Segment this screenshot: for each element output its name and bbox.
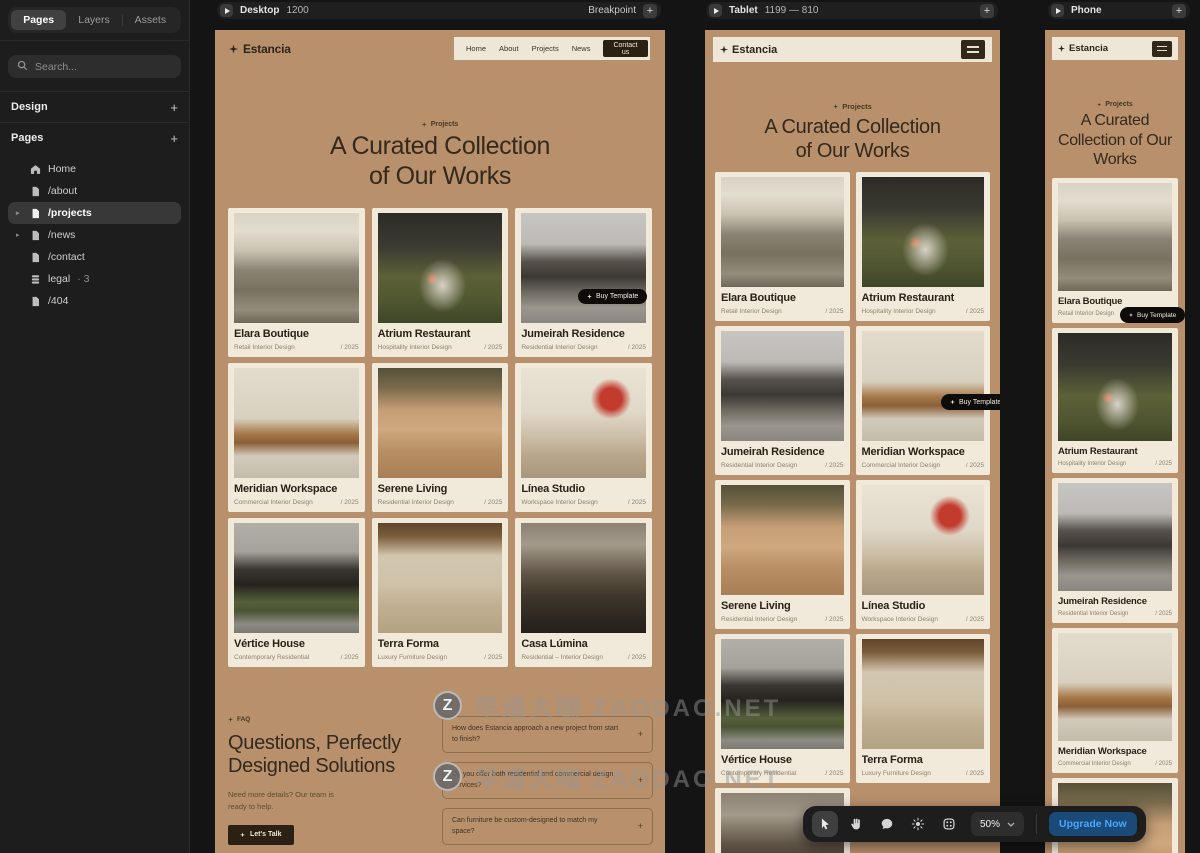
project-year: / 2025 bbox=[484, 344, 502, 351]
star-icon bbox=[950, 400, 955, 405]
project-year: / 2025 bbox=[825, 462, 843, 469]
project-card[interactable]: Jumeirah Residence Residential Interior … bbox=[515, 208, 652, 357]
project-category: Hospitality Interior Design bbox=[862, 308, 936, 315]
faq-question: Do you offer both residential and commer… bbox=[452, 770, 620, 791]
tablet-breakpoint-bar[interactable]: Tablet 1199 — 810 + bbox=[706, 2, 998, 19]
upgrade-now-button[interactable]: Upgrade Now bbox=[1049, 812, 1137, 836]
project-image bbox=[521, 213, 646, 323]
project-image bbox=[862, 639, 985, 749]
project-category: Commercial Interior Design bbox=[1058, 761, 1131, 767]
project-year: / 2025 bbox=[628, 654, 646, 661]
project-meta: Luxury Furniture Design / 2025 bbox=[862, 770, 985, 777]
project-meta: Commercial Interior Design / 2025 bbox=[862, 462, 985, 469]
project-title: Meridian Workspace bbox=[862, 446, 985, 458]
hero-badge: Projects bbox=[215, 121, 665, 128]
project-year: / 2025 bbox=[966, 770, 984, 777]
buy-template-pill[interactable]: Buy Template bbox=[941, 394, 1000, 410]
nav-link-home[interactable]: Home bbox=[466, 44, 486, 53]
star-icon bbox=[1097, 103, 1101, 107]
page-label: /404 bbox=[48, 295, 68, 307]
project-image bbox=[721, 639, 844, 749]
project-title: Jumeirah Residence bbox=[721, 446, 844, 458]
project-meta: Residential Interior Design / 2025 bbox=[1058, 611, 1172, 617]
project-image bbox=[1058, 633, 1172, 741]
faq-question: How does Estancia approach a new project… bbox=[452, 724, 620, 745]
lets-talk-button[interactable]: Let's Talk bbox=[228, 825, 294, 845]
project-title: Terra Forma bbox=[378, 638, 503, 650]
faq-title: Questions, PerfectlyDesigned Solutions bbox=[228, 732, 433, 778]
project-meta: Residential Interior Design / 2025 bbox=[721, 462, 844, 469]
project-card[interactable]: Jumeirah Residence Residential Interior … bbox=[715, 326, 850, 475]
project-year: / 2025 bbox=[1155, 761, 1172, 767]
project-image bbox=[234, 368, 359, 478]
project-year: / 2025 bbox=[484, 654, 502, 661]
sidebar-item-news[interactable]: ▸ /news bbox=[8, 224, 181, 246]
project-title: Elara Boutique bbox=[234, 328, 359, 340]
project-year: / 2025 bbox=[825, 616, 843, 623]
project-card[interactable]: Serene Living Residential Interior Desig… bbox=[715, 480, 850, 629]
project-year: / 2025 bbox=[966, 462, 984, 469]
project-title: Jumeirah Residence bbox=[521, 328, 646, 340]
brand-logo[interactable]: Estancia bbox=[720, 44, 777, 56]
page-icon bbox=[30, 296, 41, 307]
star-icon bbox=[1129, 313, 1133, 317]
project-year: / 2025 bbox=[484, 499, 502, 506]
faq-item[interactable]: Can furniture be custom-designed to matc… bbox=[442, 808, 653, 845]
project-title: Vértice House bbox=[721, 754, 844, 766]
buy-template-pill[interactable]: Buy Template bbox=[1120, 307, 1185, 323]
project-card[interactable]: Meridian Workspace Commercial Interior D… bbox=[1052, 628, 1178, 773]
project-year: / 2025 bbox=[825, 308, 843, 315]
add-breakpoint-icon[interactable]: + bbox=[1172, 4, 1186, 18]
left-sidebar: PagesLayersAssets Search... Design + Pag… bbox=[0, 0, 190, 853]
project-card[interactable]: Línea Studio Workspace Interior Design /… bbox=[515, 363, 652, 512]
sidebar-item-projects[interactable]: ▸ /projects bbox=[8, 202, 181, 224]
project-meta: Residential Interior Design / 2025 bbox=[378, 499, 503, 506]
project-image bbox=[234, 213, 359, 323]
brand-logo-icon bbox=[720, 46, 728, 54]
project-title: Meridian Workspace bbox=[1058, 746, 1172, 757]
home-icon bbox=[30, 164, 41, 175]
preview-play-icon[interactable] bbox=[1051, 4, 1064, 17]
project-title: Jumeirah Residence bbox=[1058, 596, 1172, 607]
framer-editor: PagesLayersAssets Search... Design + Pag… bbox=[0, 0, 1200, 853]
divider bbox=[1036, 814, 1037, 834]
hero-badge: Projects bbox=[1045, 101, 1185, 108]
project-image bbox=[1058, 333, 1172, 441]
project-title: Atrium Restaurant bbox=[1058, 446, 1172, 457]
project-year: / 2025 bbox=[825, 770, 843, 777]
nav-link-about[interactable]: About bbox=[499, 44, 519, 53]
page-icon bbox=[30, 252, 41, 263]
project-title: Casa Lúmina bbox=[521, 638, 646, 650]
hero-title: A Curated Collectionof Our Works bbox=[215, 132, 665, 191]
project-meta: Residential Interior Design / 2025 bbox=[721, 616, 844, 623]
project-category: Commercial Interior Design bbox=[862, 462, 941, 469]
comment-tool[interactable] bbox=[874, 811, 900, 837]
star-icon bbox=[228, 717, 233, 722]
project-category: Commercial Interior Design bbox=[234, 499, 313, 506]
project-title: Línea Studio bbox=[521, 483, 646, 495]
design-section-header[interactable]: Design + bbox=[0, 92, 189, 122]
star-icon bbox=[587, 294, 592, 299]
desktop-breakpoint-bar[interactable]: Desktop 1200 Breakpoint + bbox=[217, 2, 661, 19]
project-card[interactable]: Vértice House Contemporary Residential /… bbox=[715, 634, 850, 783]
zoom-level-dropdown[interactable]: 50% bbox=[971, 812, 1024, 836]
site-navbar: HomeAboutProjectsNews Contact us bbox=[454, 37, 650, 60]
desktop-canvas-frame[interactable]: Estancia HomeAboutProjectsNews Contact u… bbox=[215, 30, 665, 853]
project-title: Terra Forma bbox=[862, 754, 985, 766]
project-image bbox=[234, 523, 359, 633]
page-label: /contact bbox=[48, 251, 85, 263]
search-icon bbox=[17, 60, 28, 74]
nav-link-news[interactable]: News bbox=[572, 44, 591, 53]
project-title: Atrium Restaurant bbox=[862, 292, 985, 304]
page-icon bbox=[30, 186, 41, 197]
project-meta: Hospitality Interior Design / 2025 bbox=[378, 344, 503, 351]
project-image bbox=[862, 177, 985, 287]
project-image bbox=[721, 485, 844, 595]
project-year: / 2025 bbox=[1155, 461, 1172, 467]
project-meta: Retail Interior Design / 2025 bbox=[721, 308, 844, 315]
project-year: / 2025 bbox=[1155, 611, 1172, 617]
project-image bbox=[1058, 483, 1172, 591]
project-card[interactable]: Atrium Restaurant Hospitality Interior D… bbox=[856, 172, 991, 321]
insert-grid-tool[interactable] bbox=[936, 811, 962, 837]
project-category: Retail Interior Design bbox=[721, 308, 782, 315]
project-meta: Commercial Interior Design / 2025 bbox=[234, 499, 359, 506]
breakpoint-label: Breakpoint bbox=[588, 5, 636, 16]
expand-plus-icon[interactable]: + bbox=[638, 728, 643, 742]
project-category: Contemporary Residential bbox=[721, 770, 796, 777]
search-input[interactable]: Search... bbox=[8, 55, 181, 78]
page-label: /projects bbox=[48, 207, 92, 219]
project-category: Luxury Furniture Design bbox=[378, 654, 447, 661]
page-label: /news bbox=[48, 229, 75, 241]
project-year: / 2025 bbox=[341, 499, 359, 506]
project-card[interactable]: Elara Boutique Retail Interior Design / … bbox=[1052, 178, 1178, 323]
project-category: Residential Interior Design bbox=[521, 344, 597, 351]
project-meta: Retail Interior Design / 2025 bbox=[234, 344, 359, 351]
divider bbox=[0, 40, 189, 41]
project-year: / 2025 bbox=[966, 308, 984, 315]
project-image bbox=[862, 485, 985, 595]
faq-list: How does Estancia approach a new project… bbox=[442, 716, 653, 853]
project-card[interactable]: Terra Forma Luxury Furniture Design / 20… bbox=[856, 634, 991, 783]
tool-group bbox=[812, 811, 962, 837]
sidebar-item-home[interactable]: Home bbox=[8, 158, 181, 180]
hero-badge: Projects bbox=[705, 102, 1000, 111]
project-meta: Contemporary Residential / 2025 bbox=[234, 654, 359, 661]
hero-title: A Curated Collectionof Our Works bbox=[705, 115, 1000, 163]
project-card[interactable]: Meridian Workspace Commercial Interior D… bbox=[228, 363, 365, 512]
sidebar-item-legal[interactable]: legal · 3 bbox=[8, 268, 181, 290]
project-card[interactable]: Atrium Restaurant Hospitality Interior D… bbox=[372, 208, 509, 357]
project-image bbox=[521, 523, 646, 633]
project-year: / 2025 bbox=[628, 499, 646, 506]
project-image bbox=[862, 331, 985, 441]
faq-item[interactable]: Do you offer both residential and commer… bbox=[442, 762, 653, 799]
add-breakpoint-icon[interactable]: + bbox=[643, 4, 657, 18]
preview-play-icon[interactable] bbox=[709, 4, 722, 17]
project-title: Serene Living bbox=[721, 600, 844, 612]
page-icon bbox=[30, 230, 41, 241]
page-count-badge: · 3 bbox=[77, 273, 89, 285]
project-title: Elara Boutique bbox=[1058, 296, 1172, 307]
faq-subtitle: Need more details? Our team isready to h… bbox=[228, 789, 433, 812]
project-year: / 2025 bbox=[628, 344, 646, 351]
hamburger-menu-icon[interactable] bbox=[1152, 41, 1172, 57]
project-card[interactable]: Jumeirah Residence Residential Interior … bbox=[1052, 478, 1178, 623]
brand-logo[interactable]: Estancia bbox=[229, 42, 291, 56]
project-category: Workspace Interior Design bbox=[862, 616, 938, 623]
sidebar-item-contact[interactable]: /contact bbox=[8, 246, 181, 268]
contact-us-button[interactable]: Contact us bbox=[603, 40, 647, 57]
brand-logo[interactable]: Estancia bbox=[1058, 43, 1108, 54]
project-meta: Workspace Interior Design / 2025 bbox=[862, 616, 985, 623]
pages-section-header[interactable]: Pages + bbox=[0, 123, 189, 153]
hamburger-menu-icon[interactable] bbox=[961, 40, 985, 59]
star-icon bbox=[422, 122, 427, 127]
expand-plus-icon[interactable]: + bbox=[638, 774, 643, 788]
faq-item[interactable]: How does Estancia approach a new project… bbox=[442, 716, 653, 753]
project-card[interactable]: Serene Living Residential Interior Desig… bbox=[372, 363, 509, 512]
tablet-canvas-frame[interactable]: Estancia Projects A Curated Collectionof… bbox=[705, 30, 1000, 853]
projects-grid: Elara Boutique Retail Interior Design / … bbox=[715, 172, 990, 853]
tab-assets[interactable]: Assets bbox=[123, 10, 178, 30]
project-meta: Workspace Interior Design / 2025 bbox=[521, 499, 646, 506]
project-meta: Contemporary Residential / 2025 bbox=[721, 770, 844, 777]
projects-grid: Elara Boutique Retail Interior Design / … bbox=[1052, 178, 1178, 853]
theme-tool[interactable] bbox=[905, 811, 931, 837]
project-title: Meridian Workspace bbox=[234, 483, 359, 495]
project-card[interactable]: Elara Boutique Retail Interior Design / … bbox=[715, 172, 850, 321]
tab-pages[interactable]: Pages bbox=[11, 10, 66, 30]
project-meta: Hospitality Interior Design / 2025 bbox=[862, 308, 985, 315]
project-title: Elara Boutique bbox=[721, 292, 844, 304]
faq-question: Can furniture be custom-designed to matc… bbox=[452, 816, 620, 837]
project-category: Residential – Interior Design bbox=[521, 654, 603, 661]
site-navbar: Estancia bbox=[1052, 37, 1178, 60]
pages-list: Home /about ▸ /projects ▸ /news /contact… bbox=[0, 158, 189, 312]
hand-tool[interactable] bbox=[843, 811, 869, 837]
project-title: Serene Living bbox=[378, 483, 503, 495]
project-category: Retail Interior Design bbox=[234, 344, 295, 351]
project-title: Línea Studio bbox=[862, 600, 985, 612]
project-card[interactable]: Terra Forma Luxury Furniture Design / 20… bbox=[372, 518, 509, 667]
brand-logo-icon bbox=[229, 45, 238, 54]
project-card[interactable]: Vértice House Contemporary Residential /… bbox=[228, 518, 365, 667]
project-meta: Commercial Interior Design / 2025 bbox=[1058, 761, 1172, 767]
sidebar-tabs: PagesLayersAssets bbox=[8, 7, 181, 33]
project-image bbox=[378, 523, 503, 633]
page-label: /about bbox=[48, 185, 77, 197]
nav-link-projects[interactable]: Projects bbox=[532, 44, 559, 53]
project-card[interactable]: Casa Lúmina Residential – Interior Desig… bbox=[515, 518, 652, 667]
project-meta: Residential – Interior Design / 2025 bbox=[521, 654, 646, 661]
buy-template-pill[interactable]: Buy Template bbox=[578, 289, 647, 304]
page-label: Home bbox=[48, 163, 76, 175]
project-year: / 2025 bbox=[341, 654, 359, 661]
bottom-toolbar: 50% Upgrade Now bbox=[803, 806, 1146, 842]
project-meta: Luxury Furniture Design / 2025 bbox=[378, 654, 503, 661]
expand-chevron-icon[interactable]: ▸ bbox=[16, 231, 20, 239]
project-category: Retail Interior Design bbox=[1058, 311, 1114, 317]
project-category: Residential Interior Design bbox=[721, 462, 797, 469]
brand-logo-icon bbox=[1058, 45, 1065, 52]
cursor-tool[interactable] bbox=[812, 811, 838, 837]
project-image bbox=[1058, 183, 1172, 291]
site-navbar: Estancia bbox=[713, 37, 992, 62]
search-placeholder: Search... bbox=[35, 61, 77, 73]
project-title: Atrium Restaurant bbox=[378, 328, 503, 340]
phone-canvas-frame[interactable]: Estancia Projects A Curated Collection o… bbox=[1045, 30, 1185, 853]
chevron-down-icon bbox=[1007, 819, 1015, 830]
star-icon bbox=[240, 832, 245, 837]
page-icon bbox=[30, 208, 41, 219]
project-category: Residential Interior Design bbox=[721, 616, 797, 623]
faq-intro: FAQ Questions, PerfectlyDesigned Solutio… bbox=[228, 716, 433, 845]
project-category: Workspace Interior Design bbox=[521, 499, 597, 506]
project-category: Hospitality Interior Design bbox=[1058, 461, 1126, 467]
project-year: / 2025 bbox=[341, 344, 359, 351]
project-card[interactable]: Línea Studio Workspace Interior Design /… bbox=[856, 480, 991, 629]
project-category: Luxury Furniture Design bbox=[862, 770, 931, 777]
star-icon bbox=[833, 104, 838, 109]
add-design-icon[interactable]: + bbox=[170, 101, 178, 114]
project-year: / 2025 bbox=[966, 616, 984, 623]
project-card[interactable]: Atrium Restaurant Hospitality Interior D… bbox=[1052, 328, 1178, 473]
tab-layers[interactable]: Layers bbox=[66, 10, 121, 30]
project-image bbox=[378, 368, 503, 478]
project-category: Residential Interior Design bbox=[378, 499, 454, 506]
sidebar-item-about[interactable]: /about bbox=[8, 180, 181, 202]
sidebar-item-404[interactable]: /404 bbox=[8, 290, 181, 312]
projects-grid: Elara Boutique Retail Interior Design / … bbox=[228, 208, 652, 667]
project-image bbox=[721, 177, 844, 287]
project-title: Vértice House bbox=[234, 638, 359, 650]
expand-plus-icon[interactable]: + bbox=[638, 820, 643, 834]
add-breakpoint-icon[interactable]: + bbox=[980, 4, 994, 18]
project-meta: Residential Interior Design / 2025 bbox=[521, 344, 646, 351]
project-category: Residential Interior Design bbox=[1058, 611, 1128, 617]
project-image bbox=[378, 213, 503, 323]
page-label: legal bbox=[48, 273, 70, 285]
project-category: Hospitality Interior Design bbox=[378, 344, 452, 351]
project-card[interactable]: Elara Boutique Retail Interior Design / … bbox=[228, 208, 365, 357]
expand-chevron-icon[interactable]: ▸ bbox=[16, 209, 20, 217]
faq-badge: FAQ bbox=[228, 716, 433, 723]
hero-title: A Curated Collection of Our Works bbox=[1045, 111, 1185, 170]
add-page-icon[interactable]: + bbox=[170, 132, 178, 145]
project-image bbox=[521, 368, 646, 478]
stack-icon bbox=[30, 274, 41, 285]
phone-breakpoint-bar[interactable]: Phone + bbox=[1048, 2, 1190, 19]
nav-links: HomeAboutProjectsNews bbox=[466, 44, 590, 53]
project-category: Contemporary Residential bbox=[234, 654, 309, 661]
project-meta: Hospitality Interior Design / 2025 bbox=[1058, 461, 1172, 467]
preview-play-icon[interactable] bbox=[220, 4, 233, 17]
project-image bbox=[721, 331, 844, 441]
